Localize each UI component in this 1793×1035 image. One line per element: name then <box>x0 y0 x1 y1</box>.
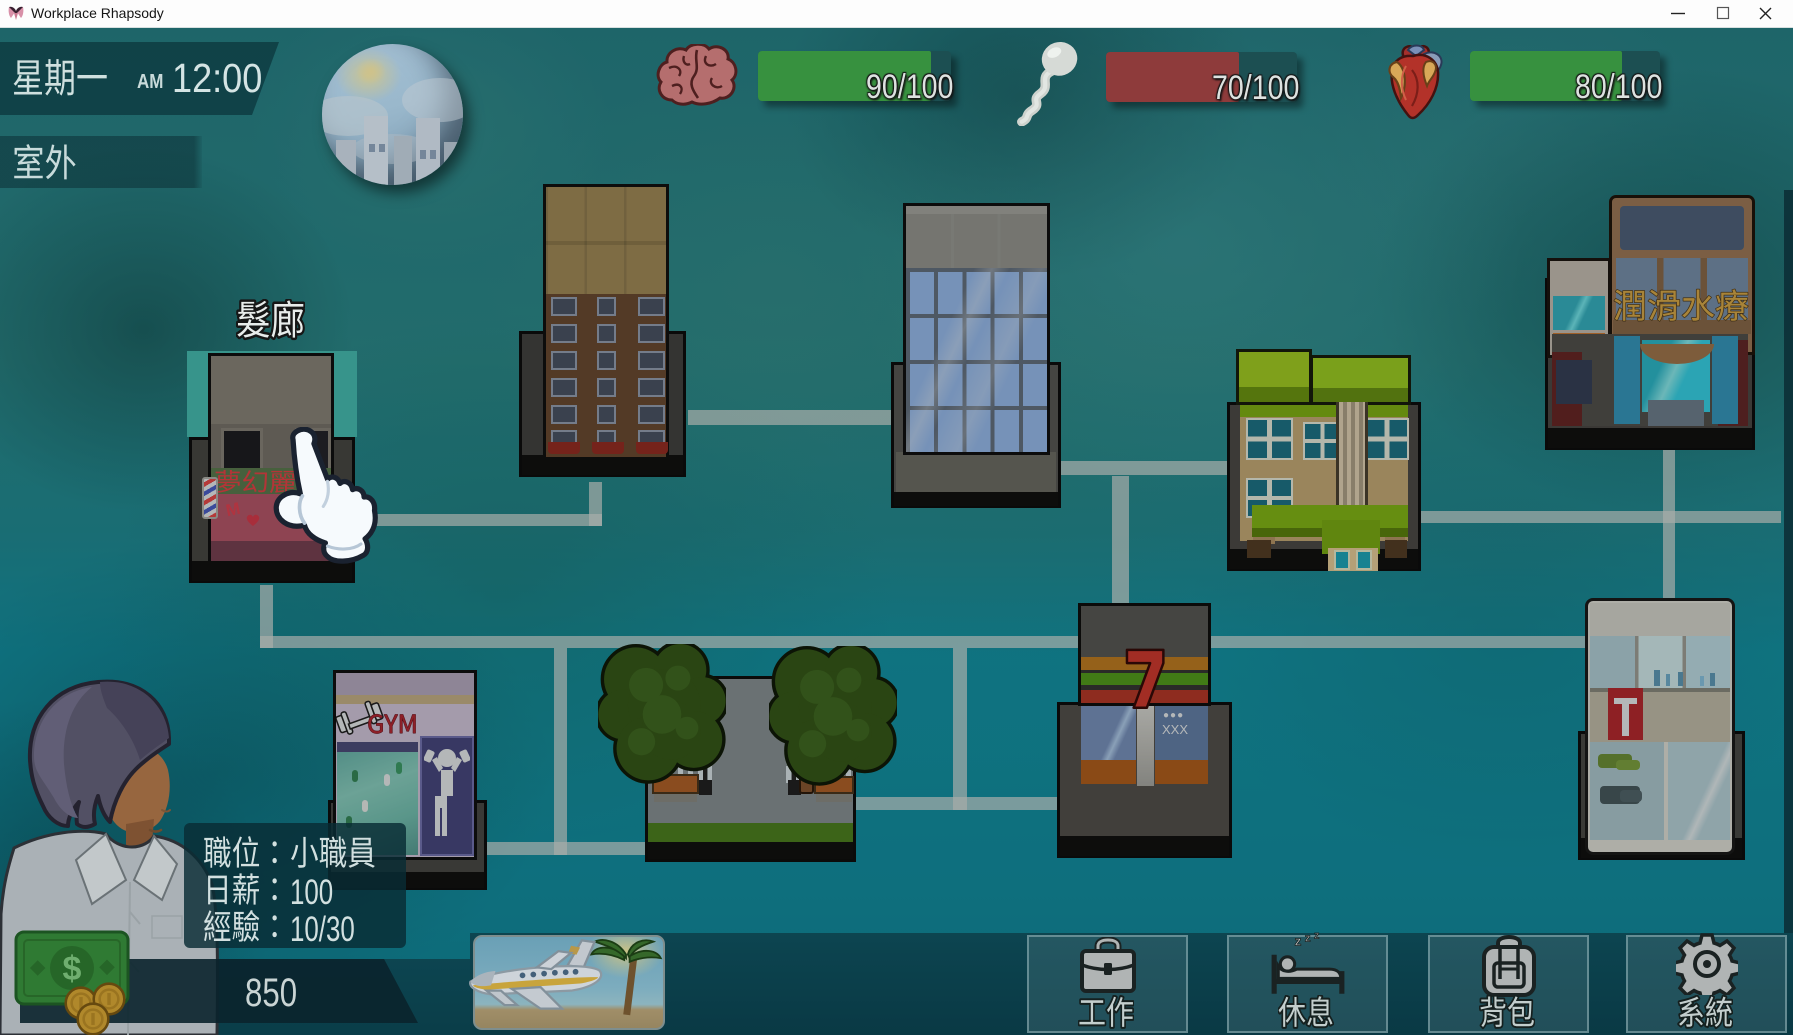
svg-text:z: z <box>1305 932 1311 944</box>
svg-text:z: z <box>1314 930 1319 941</box>
svg-text:z: z <box>1295 934 1302 949</box>
svg-text:$: $ <box>63 950 82 988</box>
